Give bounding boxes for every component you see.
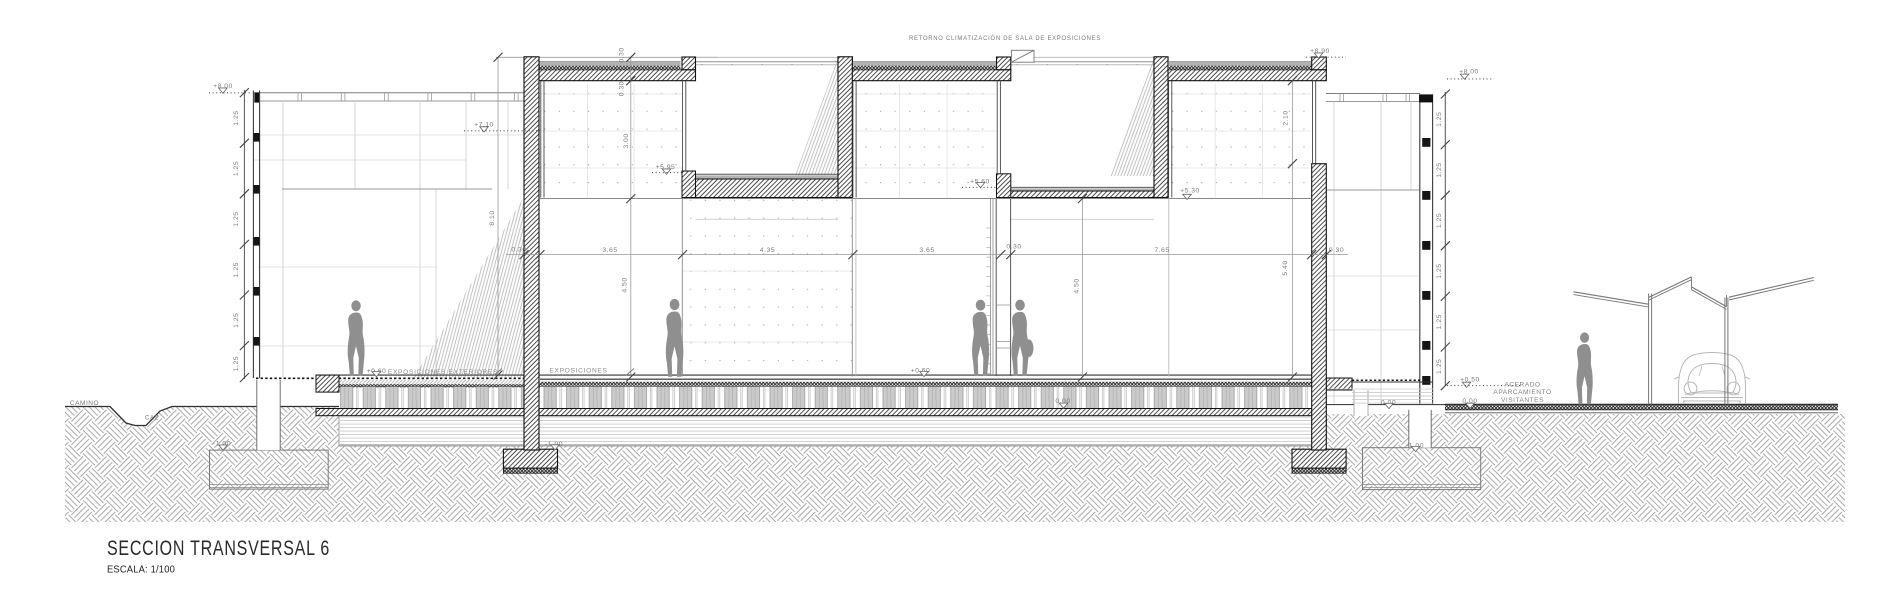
svg-text:4.50: 4.50 (1074, 278, 1081, 293)
svg-text:0.30: 0.30 (619, 81, 626, 96)
svg-text:1.25: 1.25 (233, 110, 240, 125)
svg-text:4.35: 4.35 (760, 247, 775, 254)
svg-text:1.25: 1.25 (1436, 263, 1443, 278)
svg-text:5.40: 5.40 (1282, 260, 1289, 275)
svg-text:0.30: 0.30 (1329, 247, 1344, 254)
svg-text:1.25: 1.25 (1436, 314, 1443, 329)
svg-text:0.30: 0.30 (511, 247, 526, 254)
svg-text:ESCALA: 1/100: ESCALA: 1/100 (107, 565, 175, 576)
svg-text:SECCION TRANSVERSAL 6: SECCION TRANSVERSAL 6 (107, 536, 330, 560)
svg-text:RETORNO CLIMATIZACIÓN DE SA: RETORNO CLIMATIZACIÓN DE SALA DE EXPOSIC… (909, 33, 1101, 42)
svg-text:1.25: 1.25 (233, 262, 240, 277)
svg-text:CAMINO: CAMINO (70, 400, 99, 407)
svg-text:0.30: 0.30 (619, 47, 626, 62)
svg-text:1.25: 1.25 (233, 356, 240, 371)
svg-text:1.25: 1.25 (233, 313, 240, 328)
svg-text:4.50: 4.50 (622, 277, 629, 292)
svg-text:3.65: 3.65 (602, 247, 617, 254)
svg-text:VISITANTES: VISITANTES (1501, 397, 1544, 404)
svg-text:EXPOSICIONES EXTERIORES: EXPOSICIONES EXTERIORES (388, 369, 498, 376)
svg-text:8.10: 8.10 (489, 210, 496, 225)
svg-text:APARCAMIENTO: APARCAMIENTO (1493, 389, 1551, 396)
svg-text:3.65: 3.65 (919, 247, 934, 254)
svg-text:7.65: 7.65 (1154, 247, 1169, 254)
svg-text:1.25: 1.25 (1436, 112, 1443, 127)
svg-text:CAZ: CAZ (145, 415, 159, 422)
svg-text:ACERADO: ACERADO (1504, 382, 1540, 389)
svg-text:3.00: 3.00 (623, 133, 630, 148)
svg-text:1.25: 1.25 (1436, 213, 1443, 228)
svg-text:EXPOSICIONES: EXPOSICIONES (549, 367, 607, 374)
svg-text:1.25: 1.25 (233, 211, 240, 226)
svg-text:1.25: 1.25 (1436, 359, 1443, 374)
svg-text:0.30: 0.30 (1006, 244, 1021, 251)
svg-text:+0.60: +0.60 (911, 367, 931, 374)
svg-text:1.25: 1.25 (1436, 162, 1443, 177)
svg-text:+5.30: +5.30 (1180, 188, 1200, 195)
svg-text:1.25: 1.25 (233, 161, 240, 176)
svg-text:2.10: 2.10 (1283, 110, 1290, 125)
